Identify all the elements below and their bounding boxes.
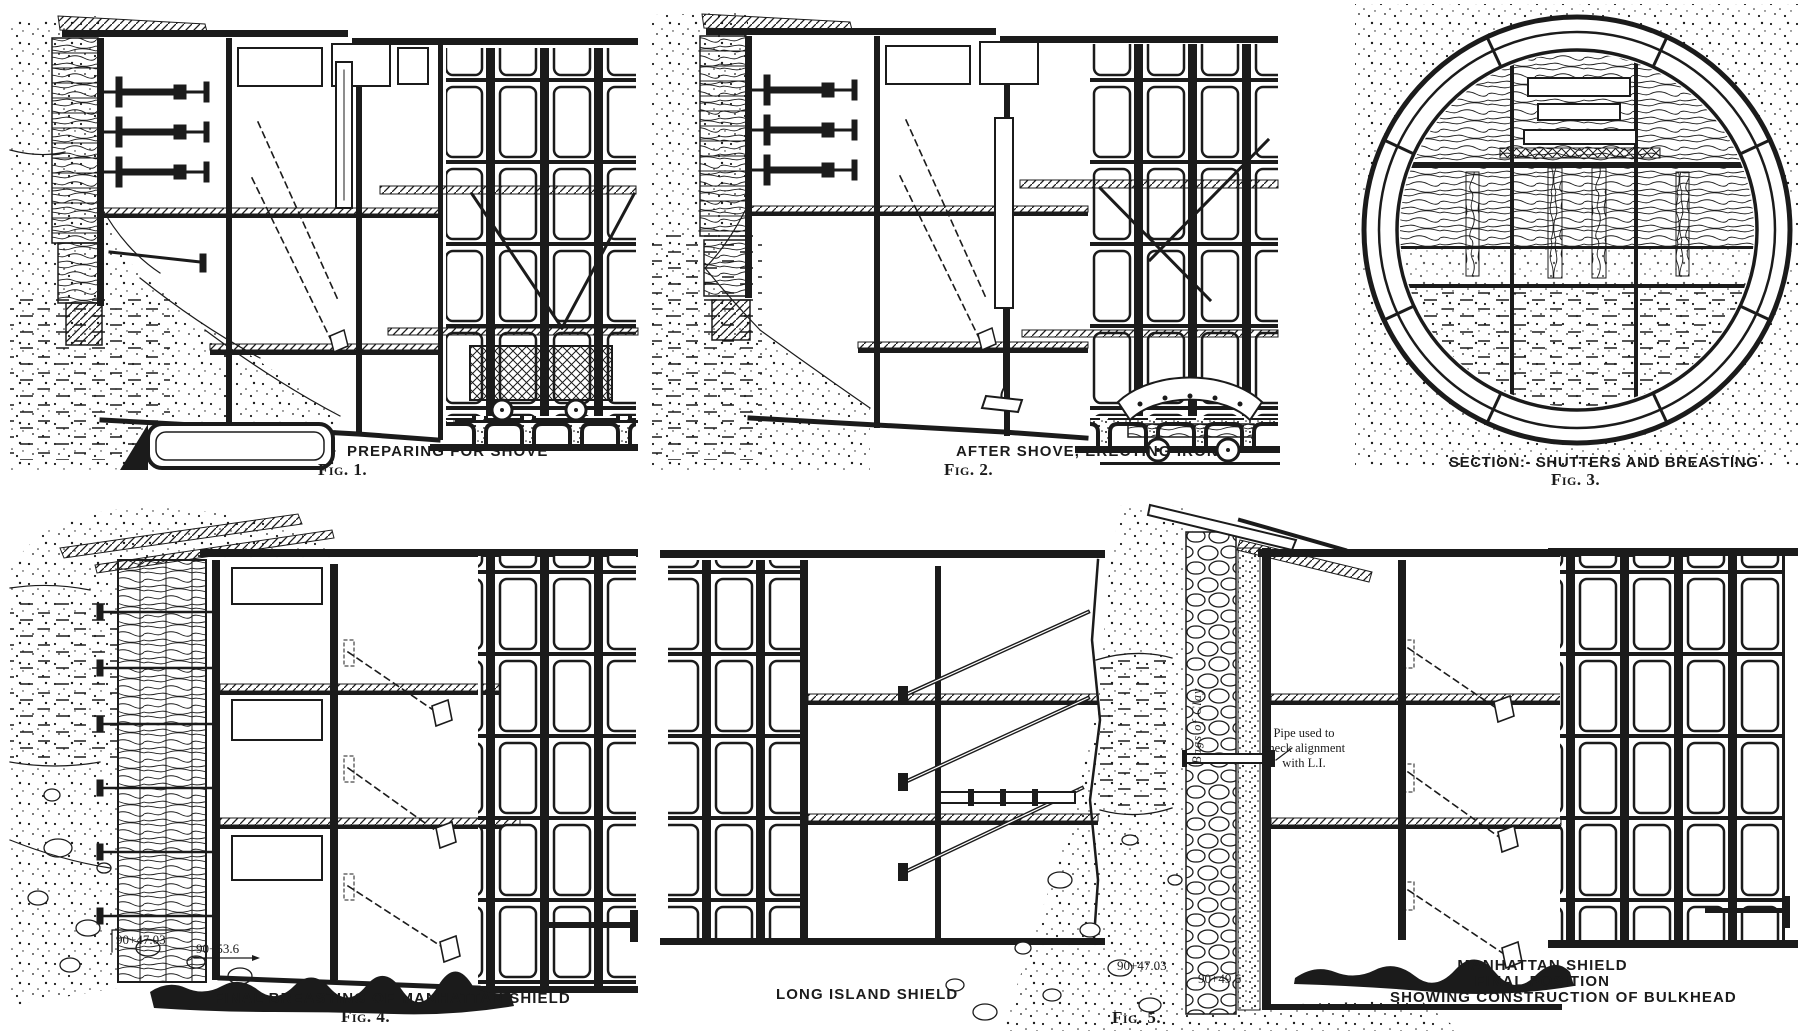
fig5-manhattan-lining	[1548, 548, 1798, 948]
fig5-station-right: 90+49.6	[1198, 971, 1241, 987]
fig1-caption: PREPARING FOR SHOVE	[347, 443, 548, 460]
fig4-tunnel-lining	[470, 556, 638, 993]
fig2-screw-jacks	[752, 75, 857, 185]
fig5-caption-manhattan-line2: FINAL POSITION	[1390, 974, 1695, 990]
fig5-clay-pocket	[1098, 660, 1170, 810]
fig3-drawing	[1355, 4, 1798, 466]
fig3-caption: SECTION:- SHUTTERS AND BREASTING	[1449, 454, 1758, 471]
fig1-lower-tube	[120, 424, 333, 470]
fig5-concrete-strip	[1238, 548, 1260, 1010]
fig3-interior	[1397, 52, 1757, 446]
fig5-pipe-note-line1: Pipe used to	[1252, 726, 1356, 741]
fig5-li-shield	[660, 550, 1105, 945]
fig4-station-arrow	[252, 955, 260, 961]
fig4-station-left: 90+47.03	[116, 932, 166, 948]
fig5-bags-of-clay	[1186, 532, 1236, 1014]
fig3-label: Fig. 3.	[1551, 470, 1600, 490]
fig4-caption: FINAL BREASTING OF MANHATTAN SHIELD	[214, 990, 571, 1007]
fig2-shield-roof	[706, 28, 996, 35]
fig5-caption-long-island: LONG ISLAND SHIELD	[776, 986, 958, 1003]
fig4-label: Fig. 4.	[341, 1007, 390, 1027]
fig4-station-right: 90+53.6	[196, 941, 239, 957]
fig1-shield-roof	[62, 30, 348, 37]
fig1-drawing	[10, 16, 638, 470]
fig5-li-struts	[898, 612, 1088, 881]
fig5-pipe-note-line3: with L.I.	[1252, 756, 1356, 771]
fig5-pipe-note-line2: check alignment	[1252, 741, 1356, 756]
fig4-drawing	[10, 508, 638, 1015]
fig5-bags-label: Bags of Clay	[1190, 687, 1205, 764]
fig2-label: Fig. 2.	[944, 460, 993, 480]
engraving-plate: PREPARING FOR SHOVE Fig. 1. AFTER SHOVE,…	[0, 0, 1800, 1031]
fig5-station-left: 90+47.03	[1117, 958, 1167, 974]
fig5-drawing	[660, 505, 1798, 1031]
fig2-drawing	[652, 12, 1280, 470]
fig5-caption-manhattan-line3: SHOWING CONSTRUCTION OF BULKHEAD	[1390, 990, 1695, 1006]
fig5-caption-manhattan-line1: MANHATTAN SHIELD	[1390, 958, 1695, 974]
engraving-canvas	[0, 0, 1800, 1031]
fig5-label: Fig. 5.	[1112, 1008, 1161, 1028]
fig1-face-breasting	[52, 38, 104, 345]
fig1-label: Fig. 1.	[318, 460, 367, 480]
fig5-pipe-note: Pipe used to check alignment with L.I.	[1252, 726, 1356, 771]
fig2-face-breasting	[700, 36, 752, 340]
fig2-erector	[982, 118, 1022, 412]
fig1-tunnel-crown	[352, 38, 638, 45]
fig4-silt-dashes	[10, 598, 118, 763]
fig2-caption: AFTER SHOVE, ERECTING IRON	[956, 443, 1219, 460]
fig5-caption-manhattan: MANHATTAN SHIELD FINAL POSITION SHOWING …	[1390, 958, 1695, 1006]
fig2-tunnel-crown	[1000, 36, 1278, 43]
